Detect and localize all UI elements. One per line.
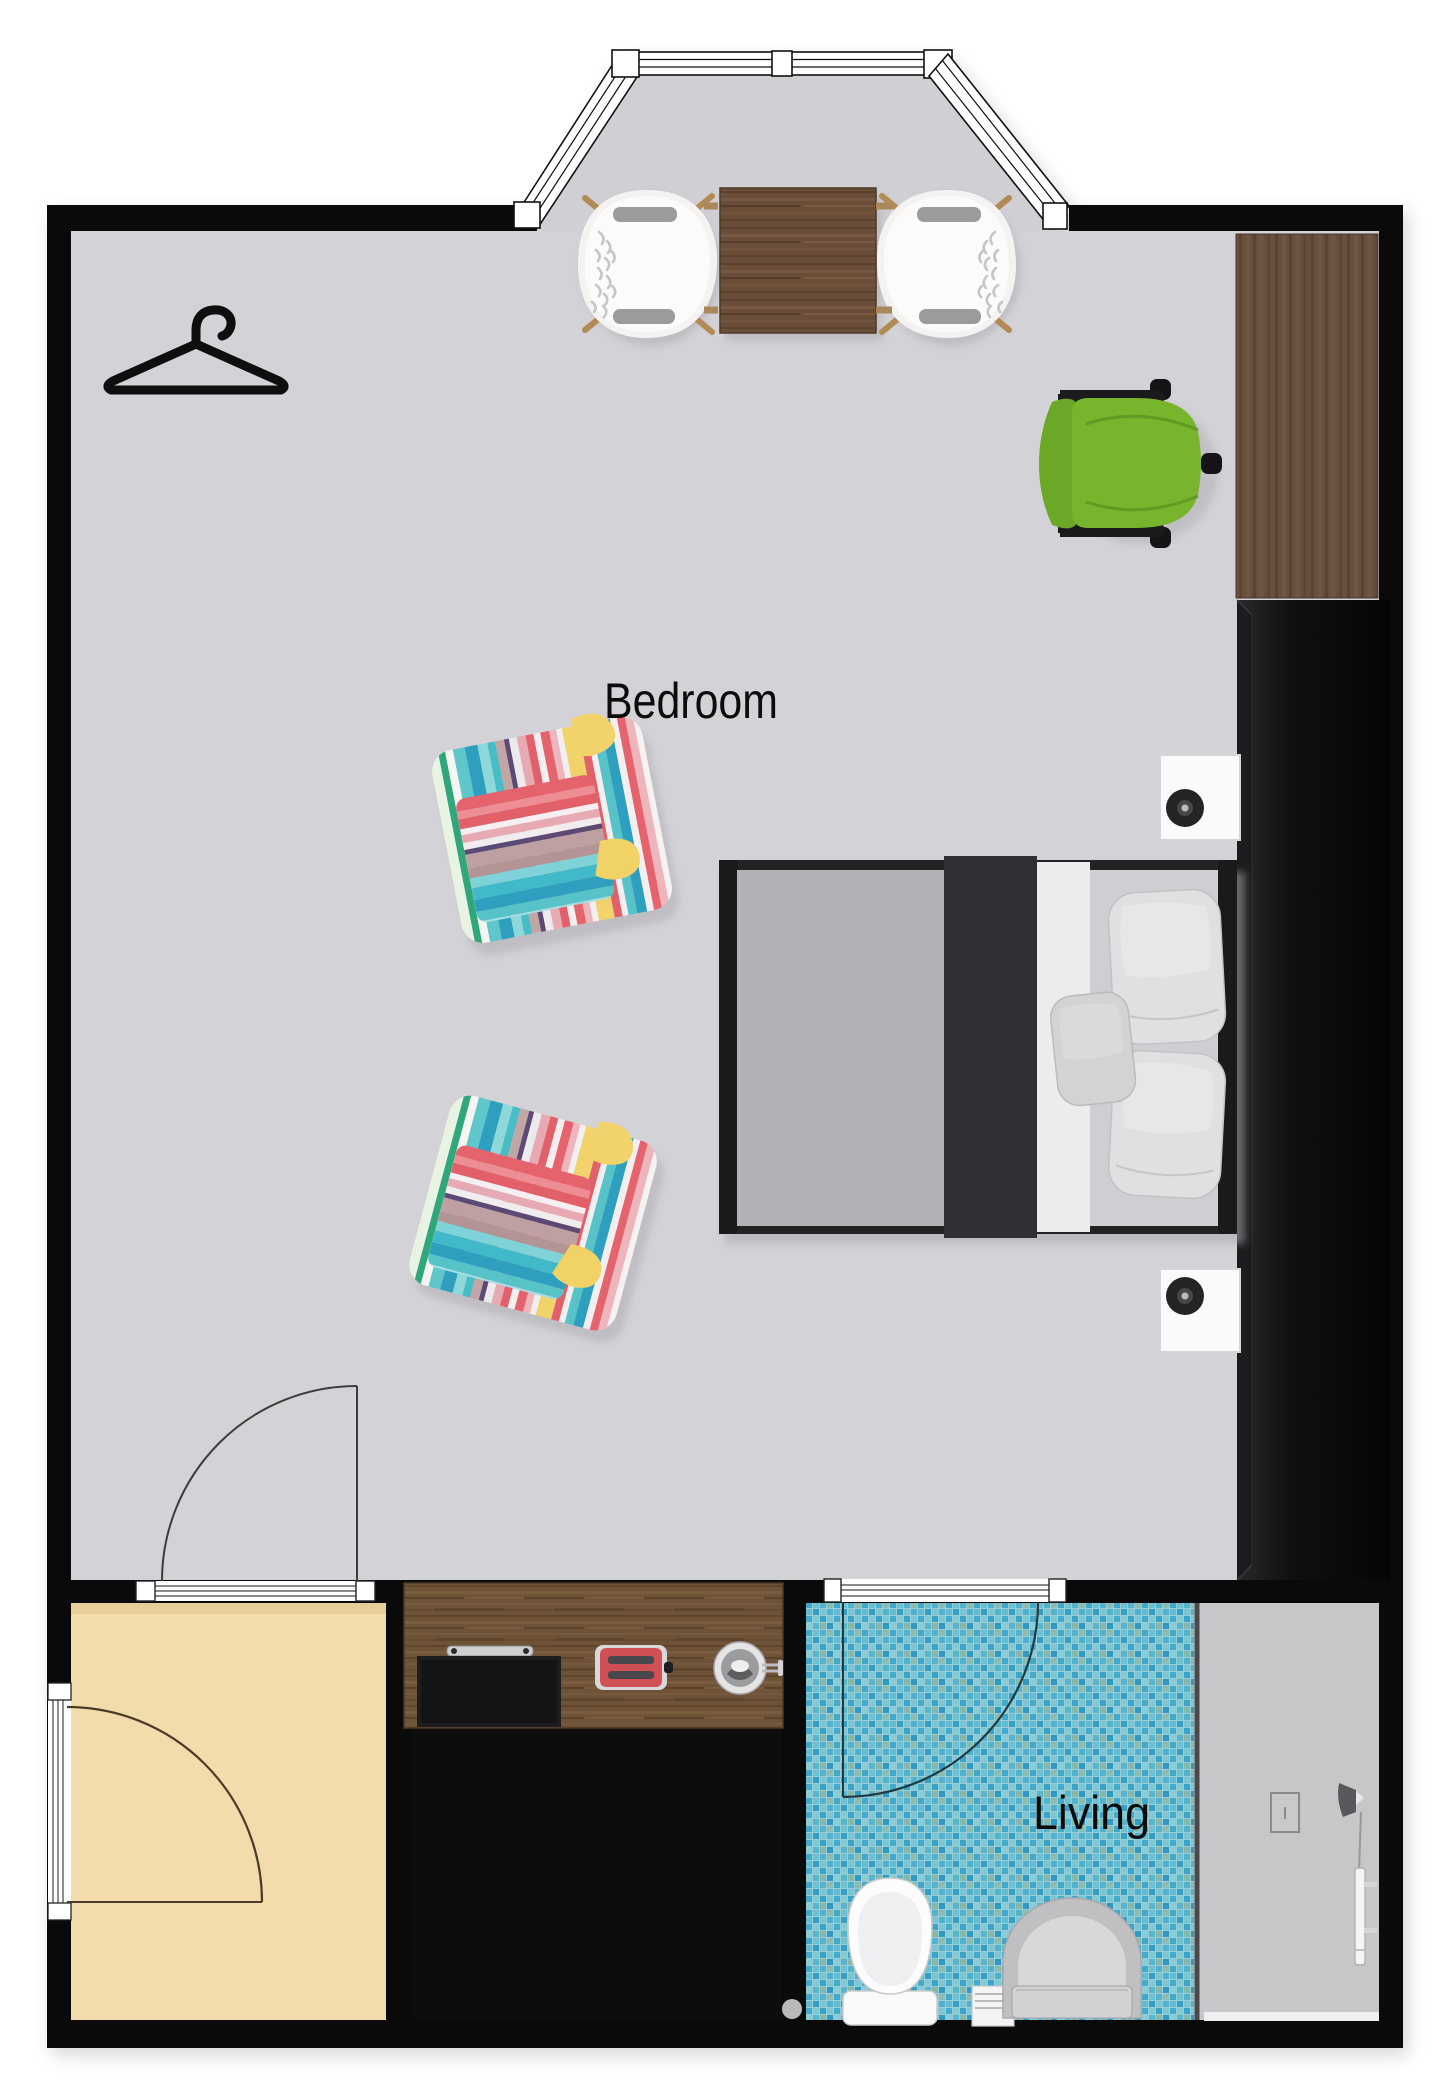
svg-text:Living: Living: [1033, 1786, 1150, 1839]
svg-text:Bedroom: Bedroom: [604, 673, 778, 729]
